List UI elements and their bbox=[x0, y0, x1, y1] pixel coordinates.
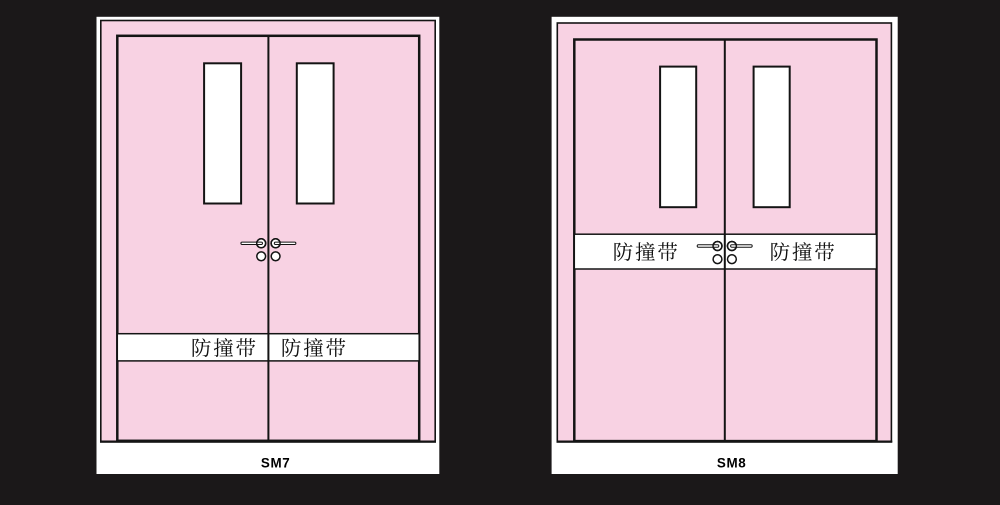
svg-text:SM7: SM7 bbox=[261, 456, 290, 471]
svg-text:SM8: SM8 bbox=[717, 456, 746, 471]
